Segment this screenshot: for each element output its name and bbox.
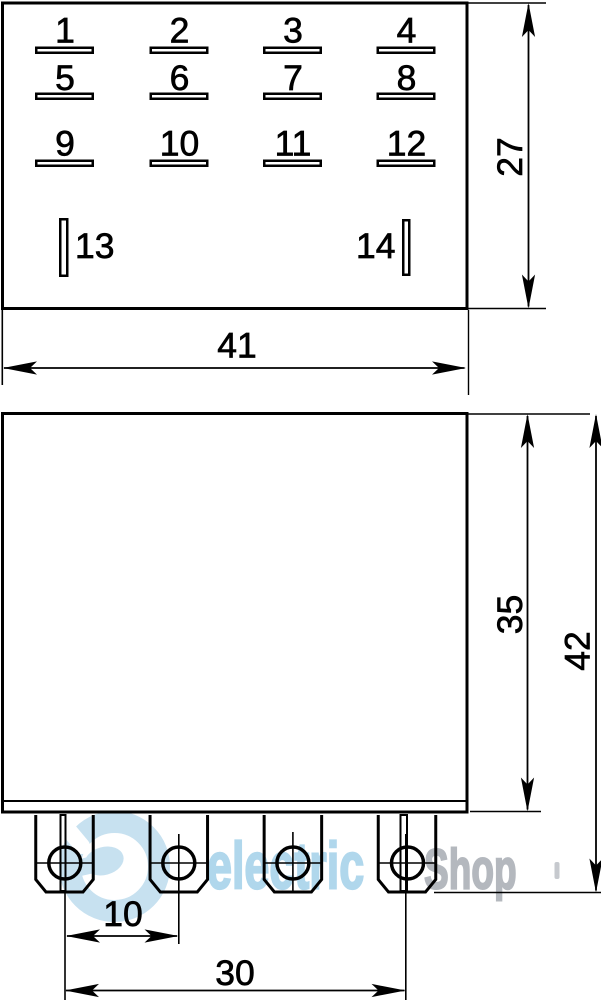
svg-text:8: 8: [397, 58, 417, 98]
svg-text:10: 10: [103, 894, 143, 934]
svg-text:13: 13: [75, 226, 115, 266]
svg-text:1: 1: [55, 11, 75, 51]
svg-text:9: 9: [55, 124, 75, 164]
svg-text:35: 35: [490, 595, 530, 635]
svg-text:2: 2: [170, 11, 190, 51]
svg-text:12: 12: [387, 124, 427, 164]
svg-text:27: 27: [490, 137, 530, 177]
svg-text:6: 6: [170, 58, 190, 98]
svg-text:11: 11: [275, 124, 312, 164]
svg-text:10: 10: [160, 124, 200, 164]
svg-text:42: 42: [558, 631, 598, 671]
svg-text:41: 41: [217, 326, 257, 366]
svg-text:4: 4: [397, 11, 417, 51]
svg-text:5: 5: [55, 58, 75, 98]
svg-text:30: 30: [215, 953, 255, 993]
svg-text:7: 7: [283, 58, 303, 98]
svg-text:3: 3: [283, 11, 303, 51]
svg-text:14: 14: [356, 226, 396, 266]
